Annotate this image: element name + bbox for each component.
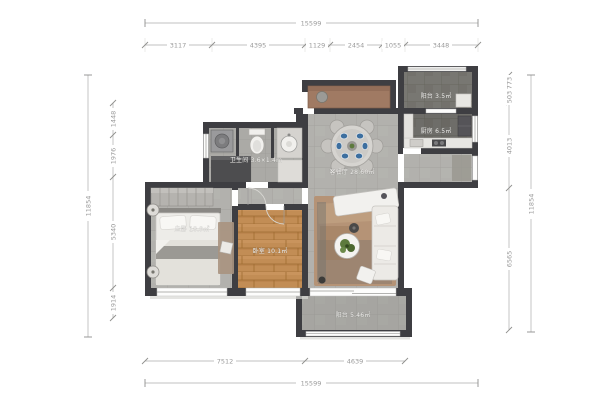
bed (155, 208, 221, 285)
plate (356, 133, 363, 139)
label-master-bedroom: 主卧 18.9㎡ (175, 225, 210, 233)
master-door-opening (232, 190, 238, 206)
dim-top-seg-4: 1055 (385, 42, 402, 50)
dim-top-total: 15599 (301, 20, 322, 28)
bedroom-side-table (220, 241, 233, 254)
dim-left-total: 11854 (85, 196, 93, 217)
label-living-dining: 客餐厅 28.60㎡ (329, 168, 374, 176)
dim-left-seg-2: 5340 (110, 224, 118, 241)
dim-left-seg-1: 1976 (110, 148, 118, 165)
extension-mat (452, 155, 471, 181)
tv-bench-shadow (317, 202, 326, 282)
label-balcony-top: 阳台 3.5㎡ (421, 92, 452, 100)
entry-cabinet (308, 86, 390, 108)
kitchen-cabinet (404, 114, 413, 138)
bathroom-door-opening (246, 182, 268, 188)
sofa-pillow (376, 249, 392, 261)
dim-right-seg-0: 773 (506, 77, 514, 89)
dim-bottom-seg-1: 4639 (347, 358, 364, 366)
floor-plan-canvas: 15599 3117 4395 1129 2454 1055 3448 7512… (0, 0, 600, 406)
plate (341, 153, 348, 159)
floor-plan-svg: 15599 3117 4395 1129 2454 1055 3448 7512… (0, 0, 600, 406)
toilet (249, 129, 265, 135)
plate (336, 142, 342, 149)
floor-lamp (319, 277, 326, 284)
dim-top-seg-3: 2454 (348, 42, 365, 50)
dimension-bottom: 7512 4639 15599 (142, 357, 478, 388)
extension-door (473, 156, 478, 180)
dim-top-seg-1: 4395 (250, 42, 267, 50)
coffee-table (335, 234, 360, 259)
plate (362, 142, 368, 149)
label-balcony-bottom: 阳台 5.46㎡ (336, 311, 371, 319)
dim-right-seg-2: 4013 (506, 138, 514, 155)
living-balcony-slider (310, 288, 396, 296)
dim-right-seg-3: 6565 (506, 251, 514, 268)
kitchen-door-opening (403, 148, 421, 154)
dimension-left: 11854 1448 1976 5340 1914 (84, 75, 118, 337)
label-bathroom: 卫生间 3.6×1.4m (230, 156, 282, 164)
entry-vase (317, 92, 328, 103)
dim-right-total: 11854 (528, 194, 536, 215)
dim-right-seg-1: 503 (506, 91, 514, 103)
bedroom2-door-opening (266, 204, 284, 210)
entry-opening (303, 108, 314, 114)
balcony-washer (456, 94, 471, 107)
kitchen-sink (410, 140, 423, 147)
dim-top-seg-5: 3448 (433, 42, 450, 50)
plate (355, 153, 362, 159)
wardrobe (151, 188, 213, 206)
dim-top-seg-0: 3117 (170, 42, 187, 50)
floor-hallway (238, 188, 302, 204)
label-bedroom2: 卧室 10.1㎡ (253, 247, 288, 255)
dim-bottom-seg-0: 7512 (217, 358, 234, 366)
dimension-right: 773 503 4013 6565 11854 (505, 72, 536, 333)
dim-left-seg-3: 1914 (110, 295, 118, 312)
dim-bottom-total: 15599 (301, 380, 322, 388)
label-kitchen: 厨房 6.5㎡ (421, 127, 452, 135)
kitchen-balcony-door (426, 109, 456, 113)
sofa (372, 206, 398, 280)
plate (340, 133, 347, 139)
dim-top-seg-2: 1129 (309, 42, 326, 50)
living-furniture (314, 188, 399, 286)
dim-left-seg-0: 1448 (110, 111, 118, 128)
dimension-top: 15599 3117 4395 1129 2454 1055 3448 (142, 19, 481, 52)
